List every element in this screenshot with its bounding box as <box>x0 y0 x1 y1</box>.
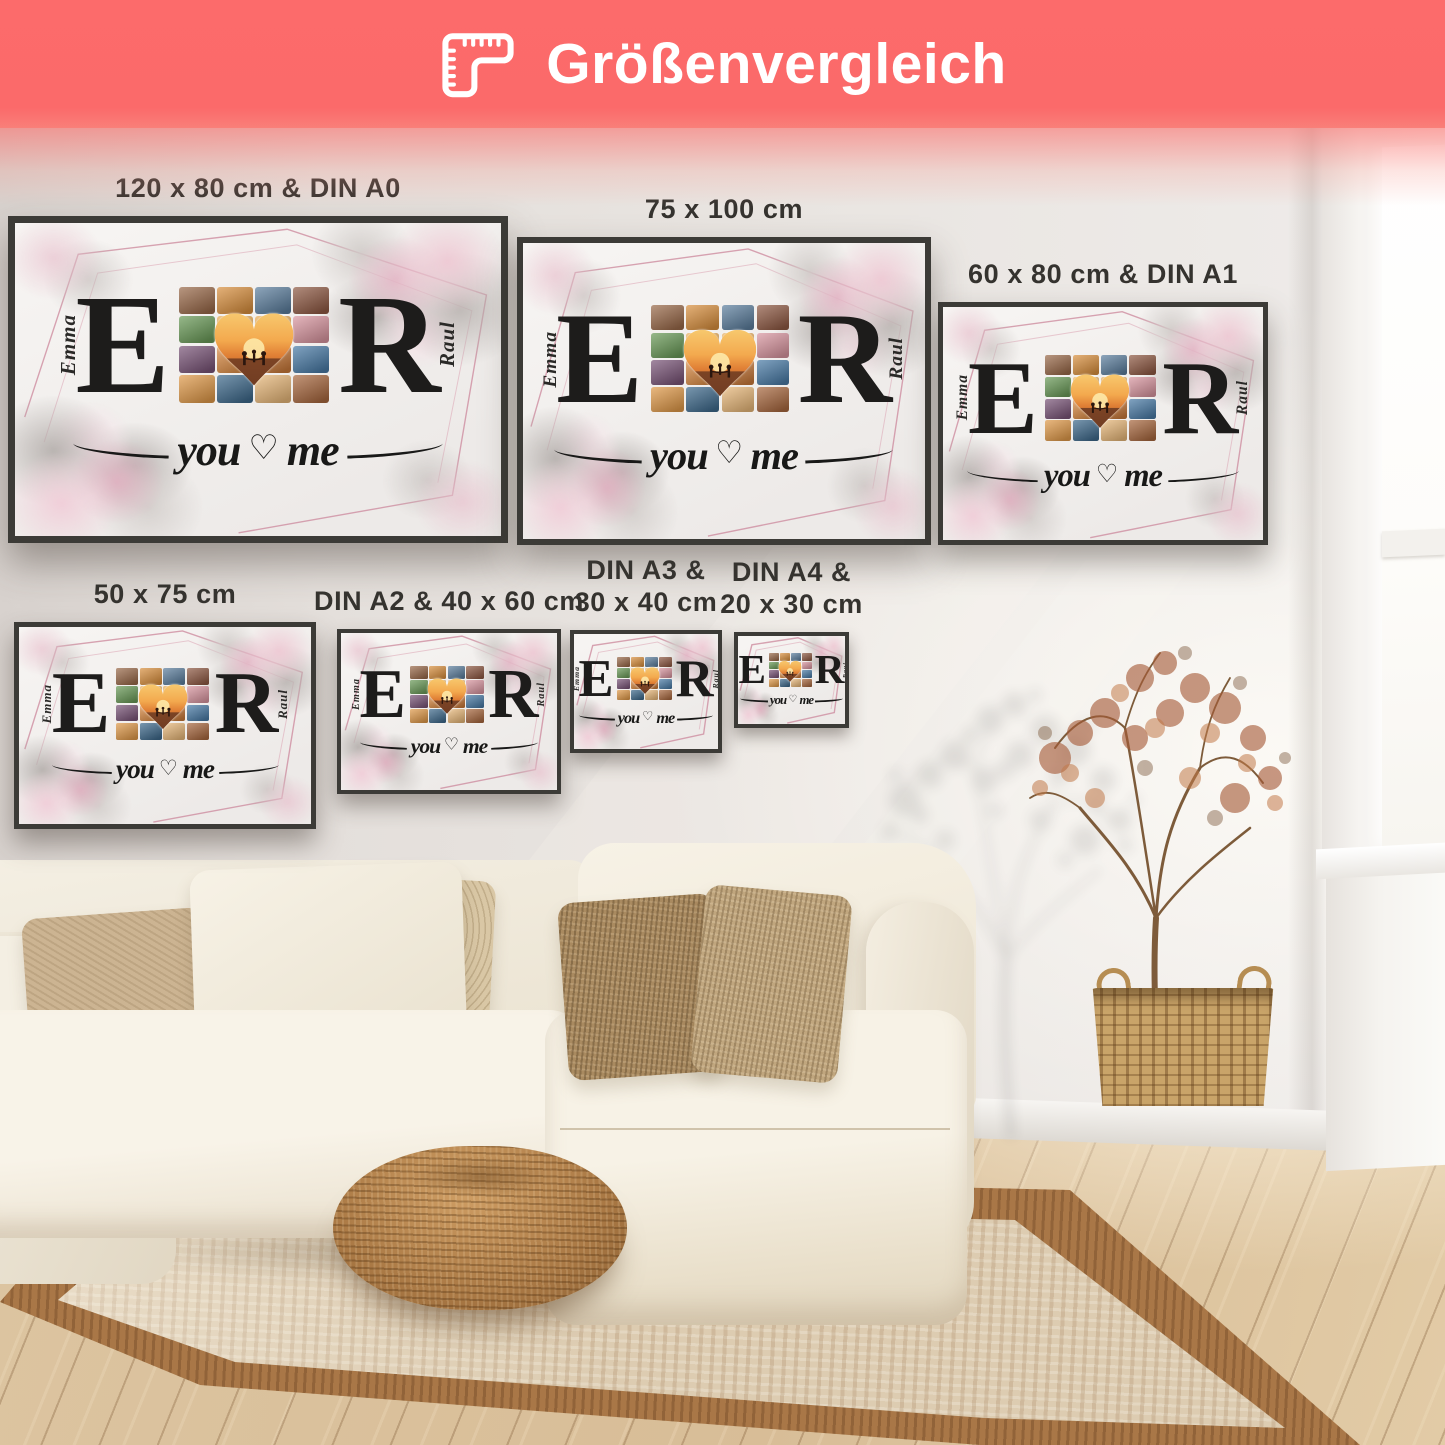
initial-right: R <box>1162 356 1238 440</box>
name-right: Raul <box>1234 380 1252 415</box>
swash-left <box>51 765 111 775</box>
initial-left: E <box>556 307 643 412</box>
photo-collage <box>769 653 813 687</box>
poster-frame: Emma E R Raul you ♡ me <box>734 632 849 728</box>
script-caption: you ♡ me <box>579 710 712 726</box>
poster-frame: Emma E R Raul you ♡ me <box>14 622 316 829</box>
poster-artwork: Emma E R Raul you ♡ me <box>341 633 557 790</box>
photo-collage <box>617 657 673 700</box>
poster-120x80-din-a0: 120 x 80 cm & DIN A0 Emma E R Raul <box>8 216 508 543</box>
photo-collage <box>1045 355 1156 441</box>
heart-icon: ♡ <box>1096 461 1119 486</box>
initial-left: E <box>578 658 613 700</box>
initial-left: E <box>739 653 766 686</box>
swash-left <box>579 715 615 721</box>
swash-right <box>815 698 843 702</box>
initial-right: R <box>215 669 279 739</box>
script-me: me <box>463 736 487 758</box>
name-right: Raul <box>536 682 547 707</box>
swash-left <box>554 449 643 463</box>
heart-photo <box>206 295 302 395</box>
name-left: Emma <box>954 374 972 420</box>
header-banner: Größenvergleich <box>0 0 1445 128</box>
script-me: me <box>1124 460 1162 493</box>
poster-artwork: Emma E R Raul you ♡ me <box>523 243 925 539</box>
ruler-icon <box>438 29 518 99</box>
heart-icon: ♡ <box>715 438 743 469</box>
heart-photo <box>1065 361 1136 435</box>
poster-size-label: 120 x 80 cm & DIN A0 <box>115 173 401 205</box>
swash-right <box>491 743 538 751</box>
poster-frame: Emma E R Raul you ♡ me <box>8 216 508 543</box>
name-right: Raul <box>435 321 460 367</box>
page-title: Größenvergleich <box>546 31 1006 97</box>
photo-collage <box>179 287 329 403</box>
script-you: you <box>618 710 639 726</box>
heart-icon: ♡ <box>642 710 653 723</box>
initial-left: E <box>75 288 170 402</box>
swash-left <box>73 443 169 458</box>
initial-left: E <box>360 667 406 723</box>
script-caption: you ♡ me <box>554 436 893 476</box>
poster-din-a3-30x40: DIN A3 & 30 x 40 cm Emma E R Raul <box>570 630 722 753</box>
poster-size-label: DIN A4 & 20 x 30 cm <box>720 557 863 621</box>
poster-frame: Emma E R Raul you ♡ me <box>517 237 931 545</box>
poster-artwork: Emma E R Raul you ♡ me <box>15 223 501 536</box>
swash-right <box>677 715 713 721</box>
name-left: Emma <box>540 331 562 388</box>
script-caption: you ♡ me <box>52 756 279 783</box>
script-me: me <box>183 756 214 783</box>
poster-frame: Emma E R Raul you ♡ me <box>337 629 561 794</box>
name-right: Raul <box>275 689 291 719</box>
seat-seam <box>560 1128 950 1130</box>
heart-icon: ♡ <box>159 757 178 778</box>
photo-collage <box>116 668 209 740</box>
script-you: you <box>177 429 240 473</box>
name-right: Raul <box>886 337 908 380</box>
poster-size-label: 75 x 100 cm <box>645 194 803 226</box>
script-me: me <box>287 429 339 473</box>
name-left: Emma <box>39 684 55 723</box>
poster-din-a4-20x30: DIN A4 & 20 x 30 cm Emma E R Raul <box>734 632 849 728</box>
poster-din-a2-40x60: DIN A2 & 40 x 60 cm Emma E R Raul <box>337 629 561 794</box>
heart-photo <box>424 670 471 719</box>
heart-icon: ♡ <box>788 695 797 705</box>
poster-size-label: DIN A3 & 30 x 40 cm <box>575 555 718 619</box>
poster-60x80-din-a1: 60 x 80 cm & DIN A1 Emma E R Raul <box>938 302 1268 545</box>
script-you: you <box>650 436 708 476</box>
initial-right: R <box>798 307 892 412</box>
heart-photo <box>627 660 663 697</box>
swash-left <box>360 743 407 751</box>
script-caption: you ♡ me <box>967 460 1239 493</box>
poster-artwork: Emma E R Raul you ♡ me <box>943 307 1263 540</box>
initial-left: E <box>968 356 1038 440</box>
initial-right: R <box>815 653 845 686</box>
initial-right: R <box>676 658 714 700</box>
poster-artwork: Emma E R Raul you ♡ me <box>19 627 311 824</box>
poster-size-label: 60 x 80 cm & DIN A1 <box>968 259 1238 291</box>
poster-size-label: DIN A2 & 40 x 60 cm <box>314 586 584 618</box>
script-you: you <box>770 694 786 707</box>
initial-left: E <box>52 669 111 739</box>
poster-artwork: Emma E R Raul you ♡ me <box>738 636 845 724</box>
swash-left <box>740 698 768 702</box>
script-you: you <box>116 756 154 783</box>
script-me: me <box>800 694 814 707</box>
poster-75x100: 75 x 100 cm Emma E R Raul <box>517 237 931 545</box>
name-left: Emma <box>572 666 581 691</box>
pillow-light-brown-woven <box>690 884 853 1084</box>
initial-right: R <box>338 288 441 402</box>
photo-collage <box>410 666 484 723</box>
poster-50x75: 50 x 75 cm Emma E R Raul <box>14 622 316 829</box>
initial-right: R <box>488 667 538 723</box>
script-me: me <box>656 710 674 726</box>
poster-size-label: 50 x 75 cm <box>94 579 237 611</box>
heart-photo <box>676 313 764 405</box>
heart-icon: ♡ <box>444 736 459 753</box>
script-caption: you ♡ me <box>360 736 538 758</box>
script-me: me <box>751 436 798 476</box>
swash-right <box>219 765 279 775</box>
script-you: you <box>1044 460 1090 493</box>
swash-right <box>805 449 894 463</box>
wicker-pouf <box>333 1146 627 1310</box>
name-right: Raul <box>843 662 849 678</box>
heart-icon: ♡ <box>248 431 278 465</box>
name-right: Raul <box>711 669 720 689</box>
photo-collage <box>651 305 789 412</box>
swash-right <box>1168 470 1239 481</box>
heart-photo <box>133 673 193 735</box>
poster-frame: Emma E R Raul you ♡ me <box>570 630 722 753</box>
name-left: Emma <box>734 660 740 681</box>
script-caption: you ♡ me <box>740 694 843 707</box>
swash-right <box>346 443 442 458</box>
name-left: Emma <box>56 314 81 375</box>
poster-artwork: Emma E R Raul you ♡ me <box>574 634 718 749</box>
poster-frame: Emma E R Raul you ♡ me <box>938 302 1268 545</box>
name-left: Emma <box>351 678 362 710</box>
heart-photo <box>776 655 804 684</box>
script-you: you <box>411 736 440 758</box>
swash-left <box>967 470 1038 481</box>
script-caption: you ♡ me <box>73 429 442 473</box>
room-scene: 120 x 80 cm & DIN A0 Emma E R Raul <box>0 0 1445 1445</box>
